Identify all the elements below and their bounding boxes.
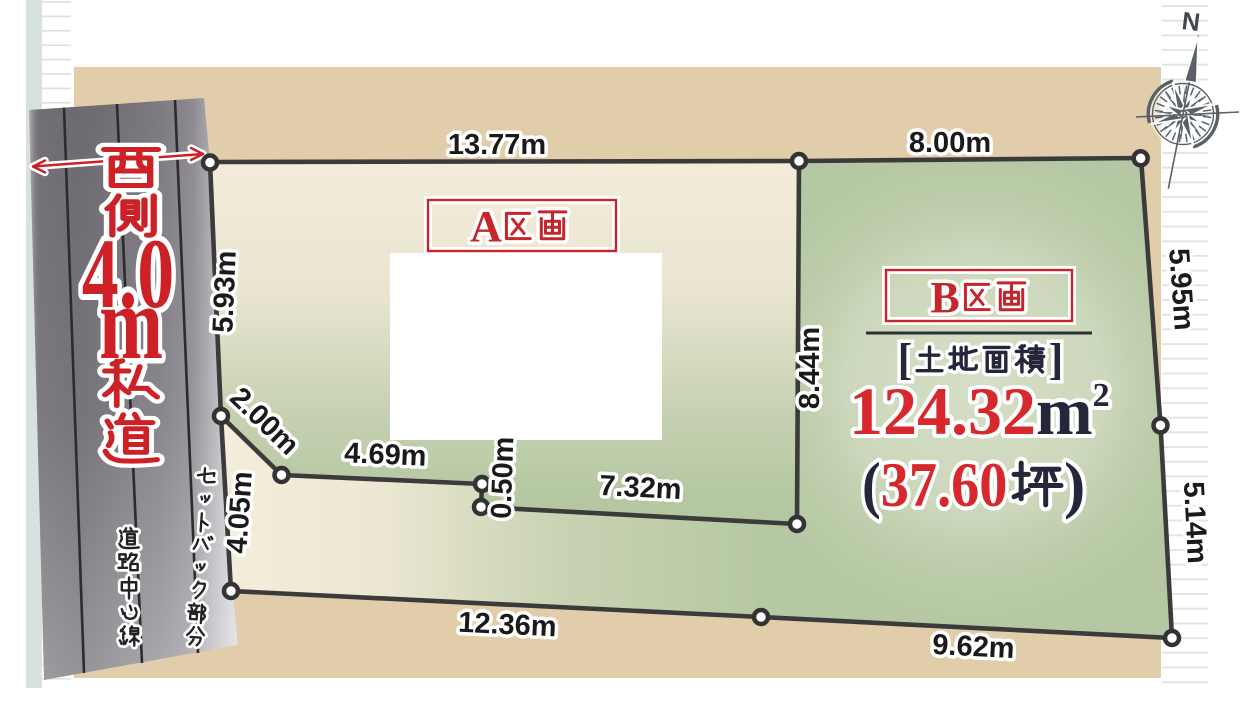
svg-text:B: B: [930, 273, 959, 322]
svg-text:8.44m: 8.44m: [794, 327, 826, 409]
svg-text:(37.60: (37.60: [862, 450, 1007, 521]
svg-text:4.05m: 4.05m: [221, 470, 259, 554]
svg-text:8.00m: 8.00m: [909, 127, 991, 159]
svg-text:5.93m: 5.93m: [207, 250, 243, 334]
svg-text:7.32m: 7.32m: [599, 470, 683, 506]
svg-text:): ): [1064, 449, 1085, 520]
svg-text:A: A: [470, 202, 502, 251]
svg-text:124.32m2: 124.32m2: [849, 373, 1110, 449]
svg-text:9.62m: 9.62m: [932, 629, 1016, 665]
svg-text:12.36m: 12.36m: [458, 607, 558, 644]
svg-text:4.69m: 4.69m: [344, 437, 428, 473]
svg-text:13.77m: 13.77m: [448, 129, 546, 161]
svg-text:5.14m: 5.14m: [1177, 481, 1213, 565]
svg-text:5.95m: 5.95m: [1162, 247, 1200, 331]
svg-text:N: N: [1180, 7, 1201, 37]
svg-text:m: m: [99, 264, 163, 381]
svg-text:0.50m: 0.50m: [486, 436, 521, 519]
